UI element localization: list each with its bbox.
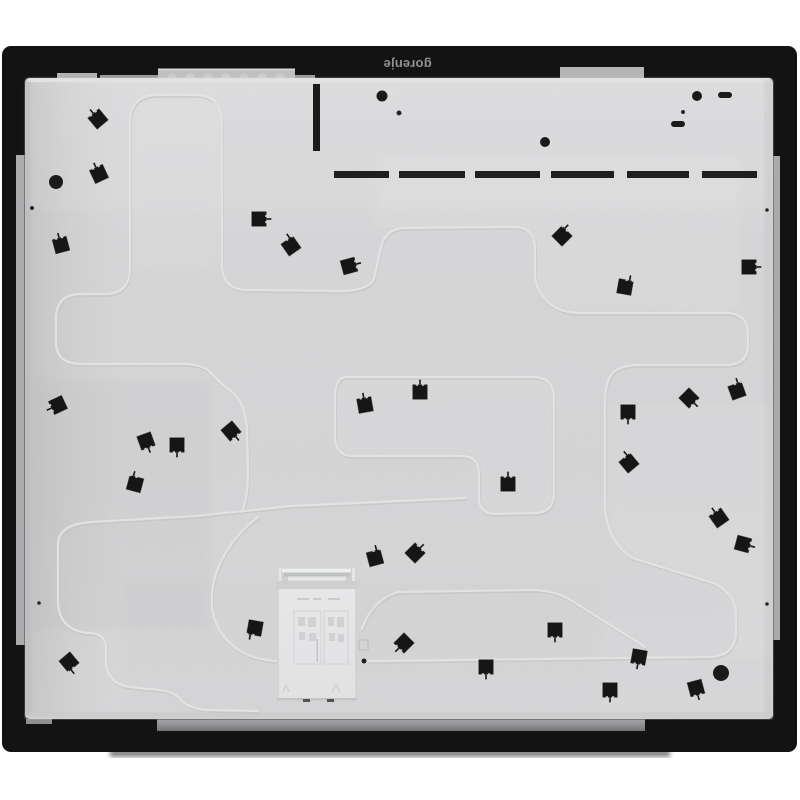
svg-text:gorenje: gorenje [383,57,431,72]
